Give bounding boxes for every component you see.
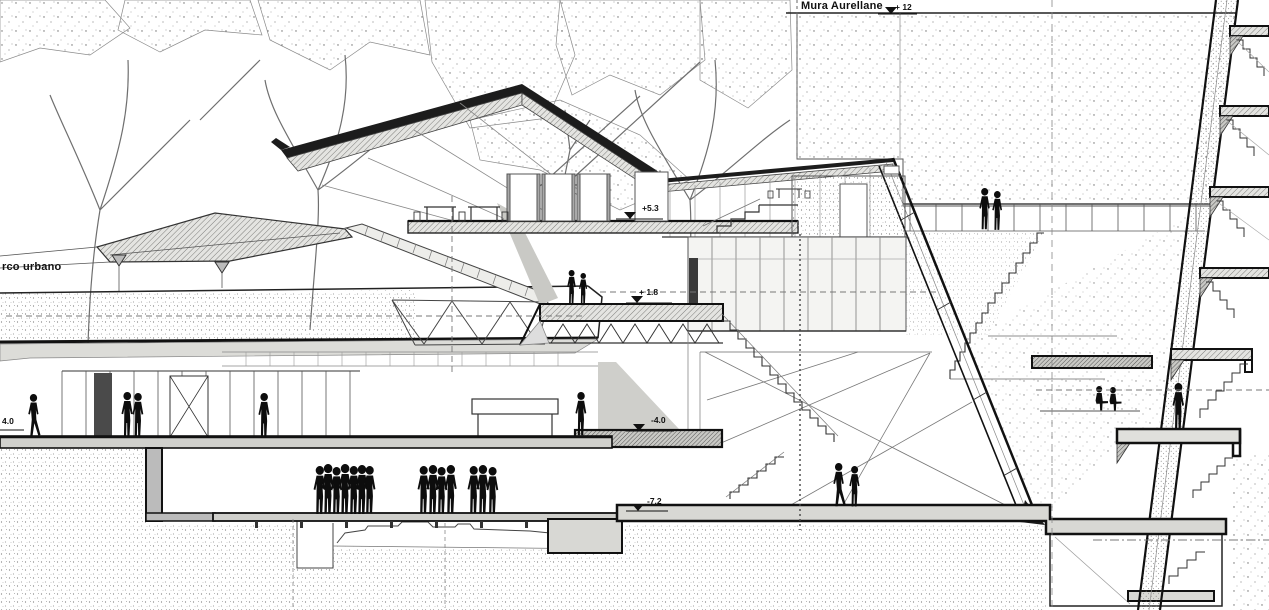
foundation-block bbox=[548, 519, 622, 553]
level-marker-18 bbox=[626, 296, 672, 303]
wall-slab bbox=[1032, 356, 1152, 368]
visitor-group-3 bbox=[468, 465, 499, 514]
visitor-group-1 bbox=[314, 464, 376, 514]
dark-door bbox=[689, 258, 698, 303]
left-wing bbox=[0, 213, 602, 437]
level-label-terrace: +5.3 bbox=[642, 204, 659, 213]
section-linework bbox=[0, 0, 1269, 610]
doors bbox=[507, 172, 668, 221]
floor-slab-53 bbox=[408, 221, 798, 233]
display-case bbox=[472, 399, 558, 414]
level-label-top: + 12 bbox=[895, 3, 912, 12]
canopy-hanger-icon bbox=[215, 262, 229, 273]
lower-hall bbox=[575, 314, 1019, 514]
level-label-basement: -7.2 bbox=[647, 497, 662, 506]
level-triangle-icon bbox=[631, 296, 643, 303]
person-silhouette bbox=[258, 393, 269, 437]
platform-18 bbox=[540, 304, 723, 321]
level-label-left: 4.0 bbox=[2, 417, 14, 426]
person-silhouette bbox=[121, 392, 132, 437]
level-label-mezzanine: + 1.8 bbox=[639, 288, 658, 297]
person-silhouette bbox=[567, 270, 576, 304]
section-drawing: Mura Aurellane + 12 rco urbano +5.3 + 1.… bbox=[0, 0, 1269, 610]
stair-b bbox=[730, 457, 784, 499]
left-door bbox=[94, 373, 112, 437]
person-silhouette bbox=[579, 273, 587, 305]
person-silhouette bbox=[575, 392, 586, 435]
green-roof-deck bbox=[0, 290, 415, 343]
vent bbox=[884, 166, 899, 174]
person-silhouette bbox=[28, 394, 40, 436]
wall-name-label: Mura Aurellane bbox=[801, 1, 883, 12]
foundation-wall bbox=[146, 448, 162, 521]
person-silhouette bbox=[833, 463, 846, 506]
level-label-lower: -4.0 bbox=[651, 416, 666, 425]
person-silhouette bbox=[849, 466, 859, 507]
core-door bbox=[840, 184, 867, 237]
stair-a bbox=[722, 321, 834, 442]
park-label: rco urbano bbox=[2, 262, 61, 273]
left-canopy bbox=[97, 213, 352, 262]
level-triangle-icon bbox=[624, 212, 636, 219]
tower-platform bbox=[1117, 429, 1240, 443]
visitor-group-2 bbox=[418, 465, 457, 514]
